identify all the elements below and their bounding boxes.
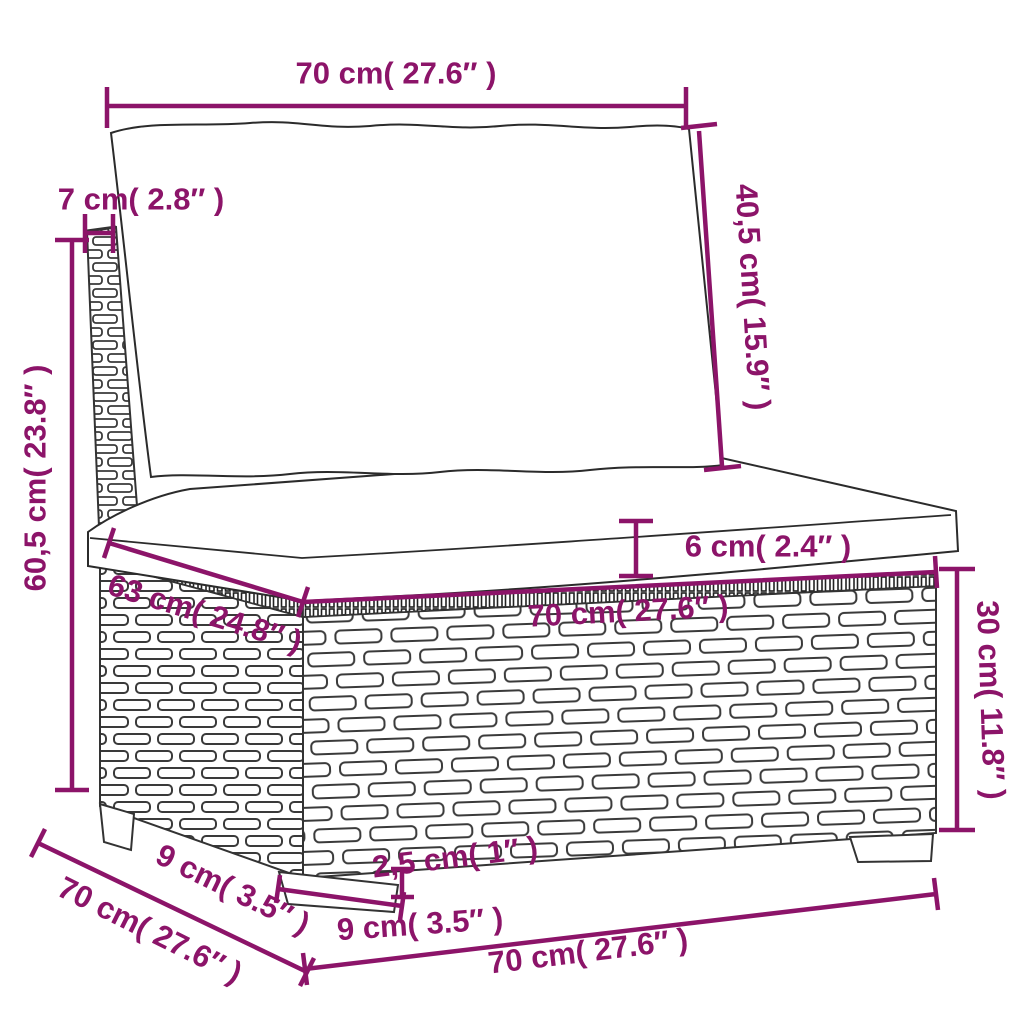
base-front-face [303, 586, 936, 878]
leg-front-right [850, 834, 933, 862]
sofa-line-art [0, 0, 1024, 1024]
dim-label-top-width: 70 cm( 27.6″ ) [296, 58, 497, 89]
dim-label-seat-cushion-thickness: 6 cm( 2.4″ ) [685, 531, 851, 562]
dim-label-back-panel-thickness: 7 cm( 2.8″ ) [58, 184, 224, 215]
furniture-dimension-diagram: 70 cm( 27.6″ ) 40,5 cm( 15.9″ ) 7 cm( 2.… [0, 0, 1024, 1024]
back-cushion [111, 122, 723, 477]
dim-label-overall-height: 60,5 cm( 23.8″ ) [20, 365, 51, 592]
dim-label-base-height: 30 cm( 11.8″ ) [972, 600, 1010, 800]
dim-line-top-width [107, 87, 686, 128]
rattan-base [100, 548, 936, 878]
dim-line-overall-height [55, 240, 89, 790]
